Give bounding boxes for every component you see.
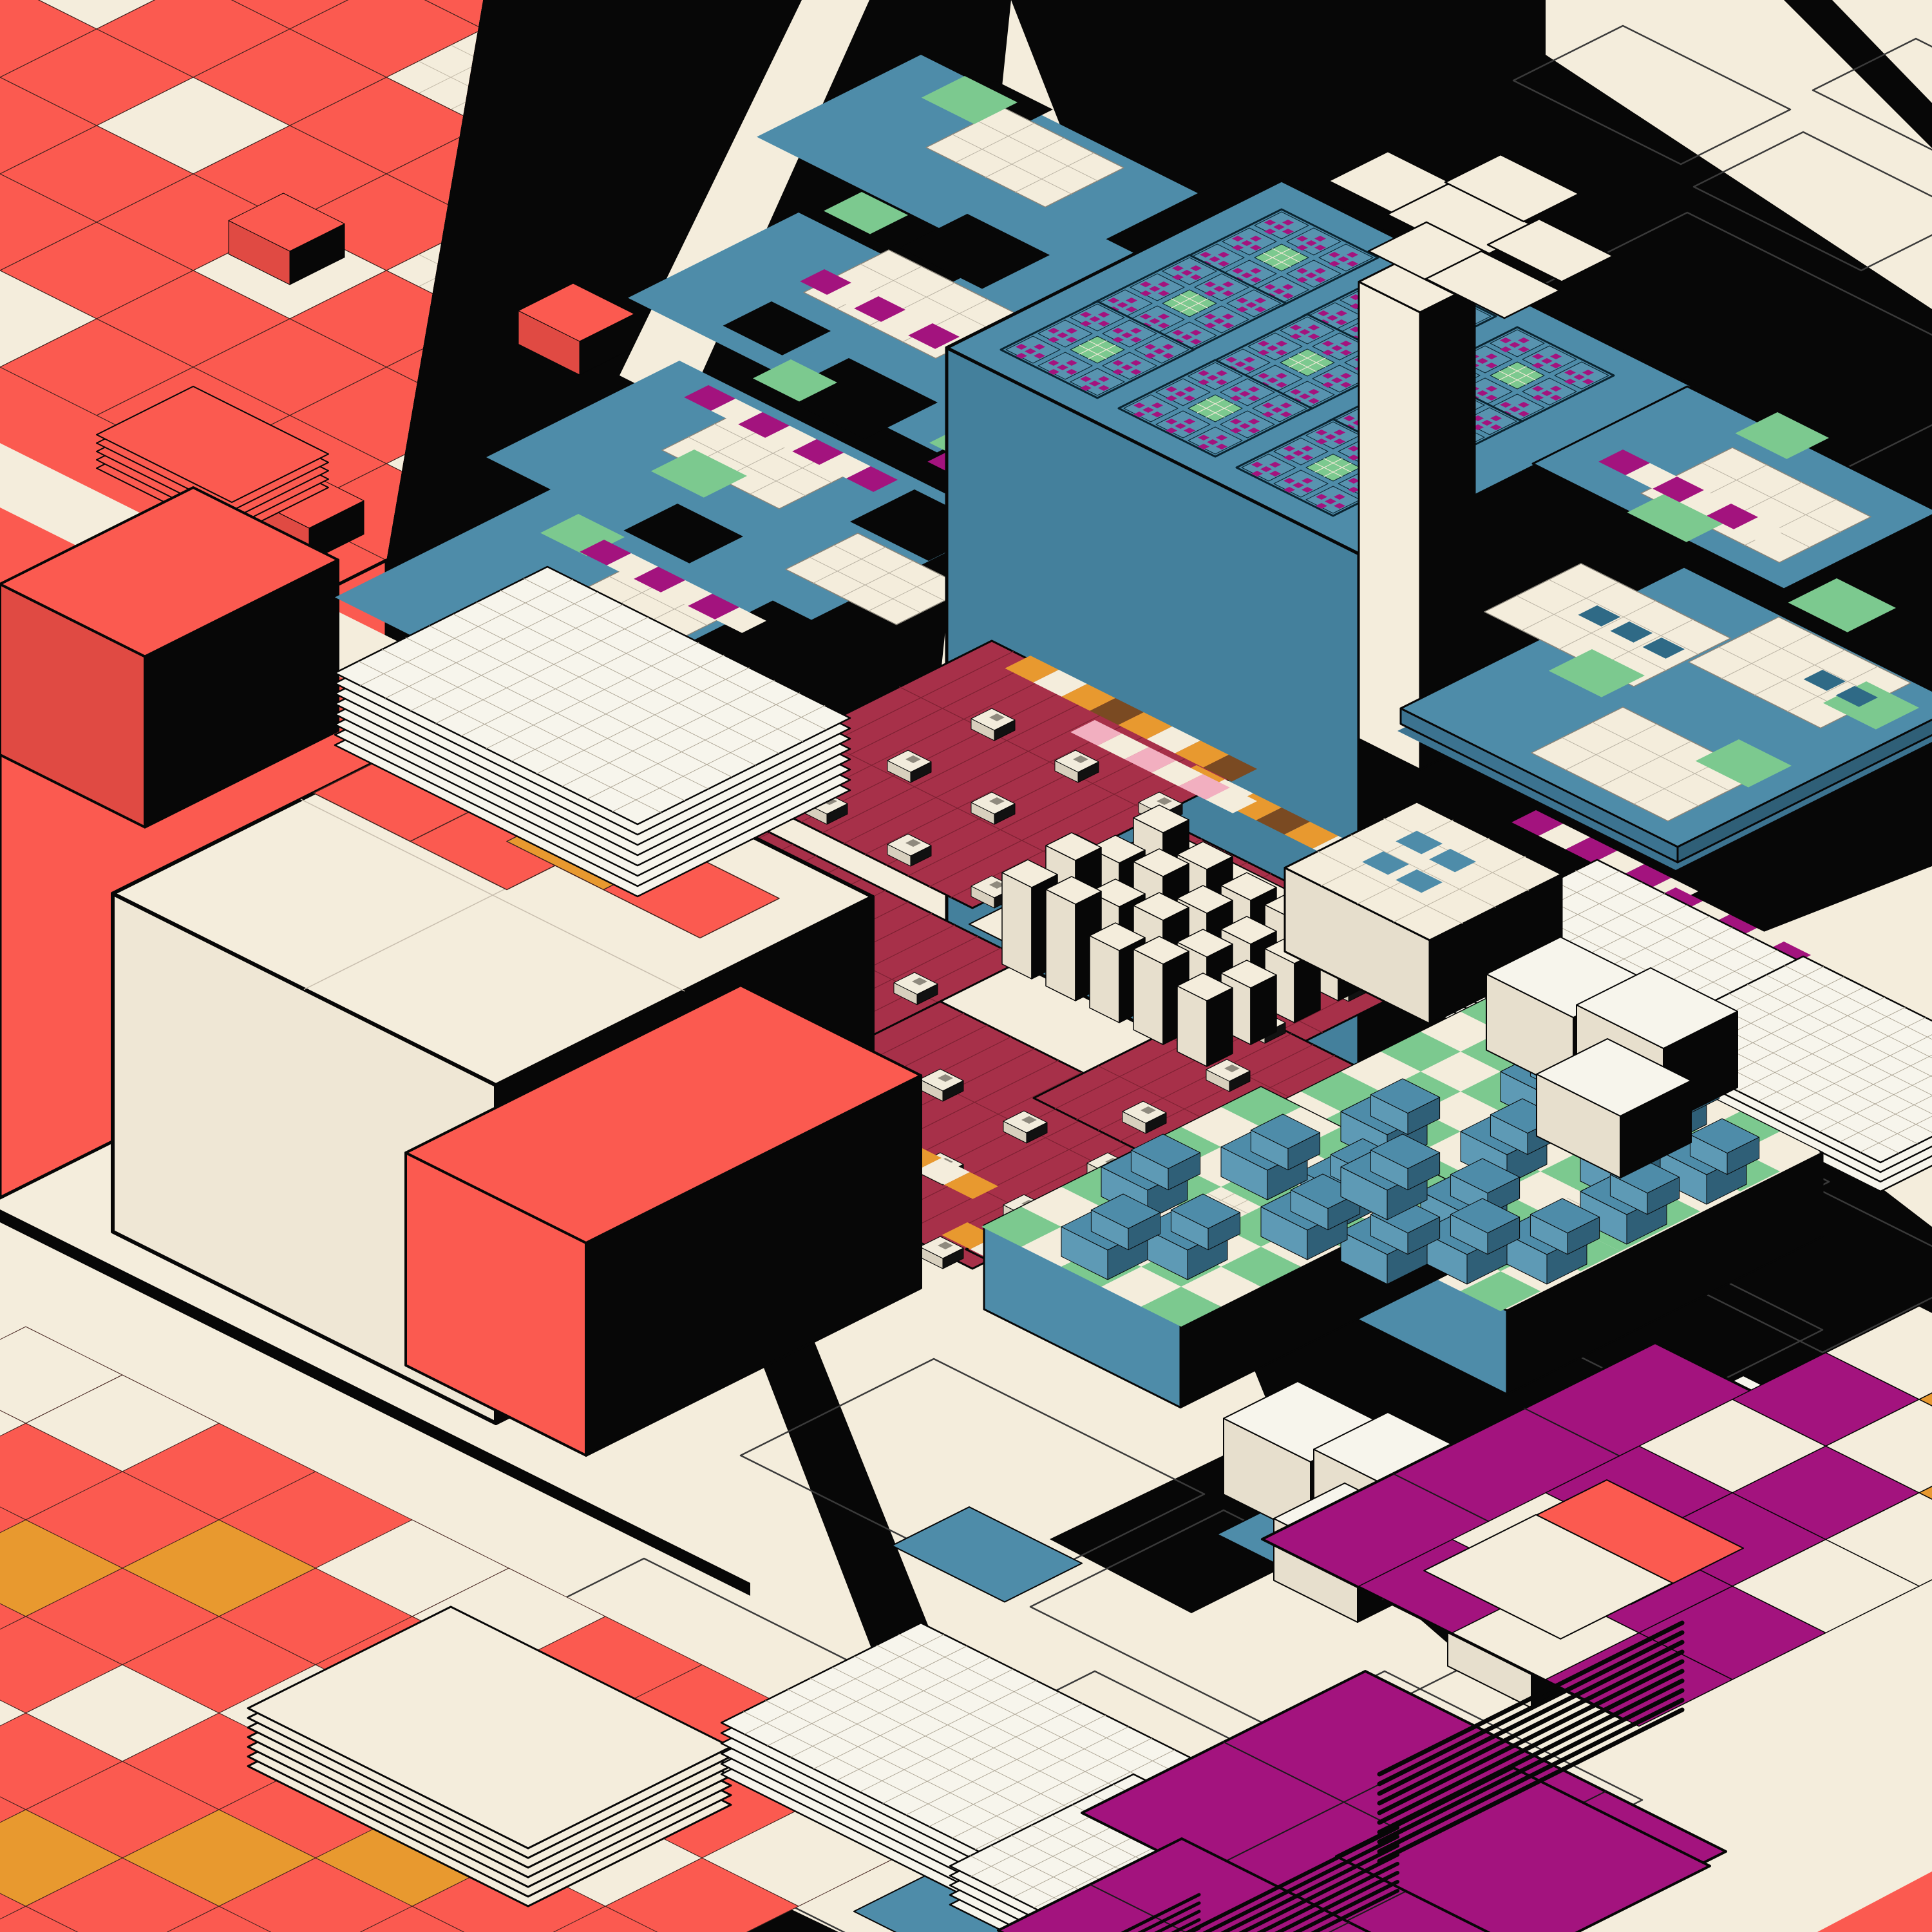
isometric-scene-svg [0, 0, 1932, 1932]
artwork-canvas [0, 0, 1932, 1932]
